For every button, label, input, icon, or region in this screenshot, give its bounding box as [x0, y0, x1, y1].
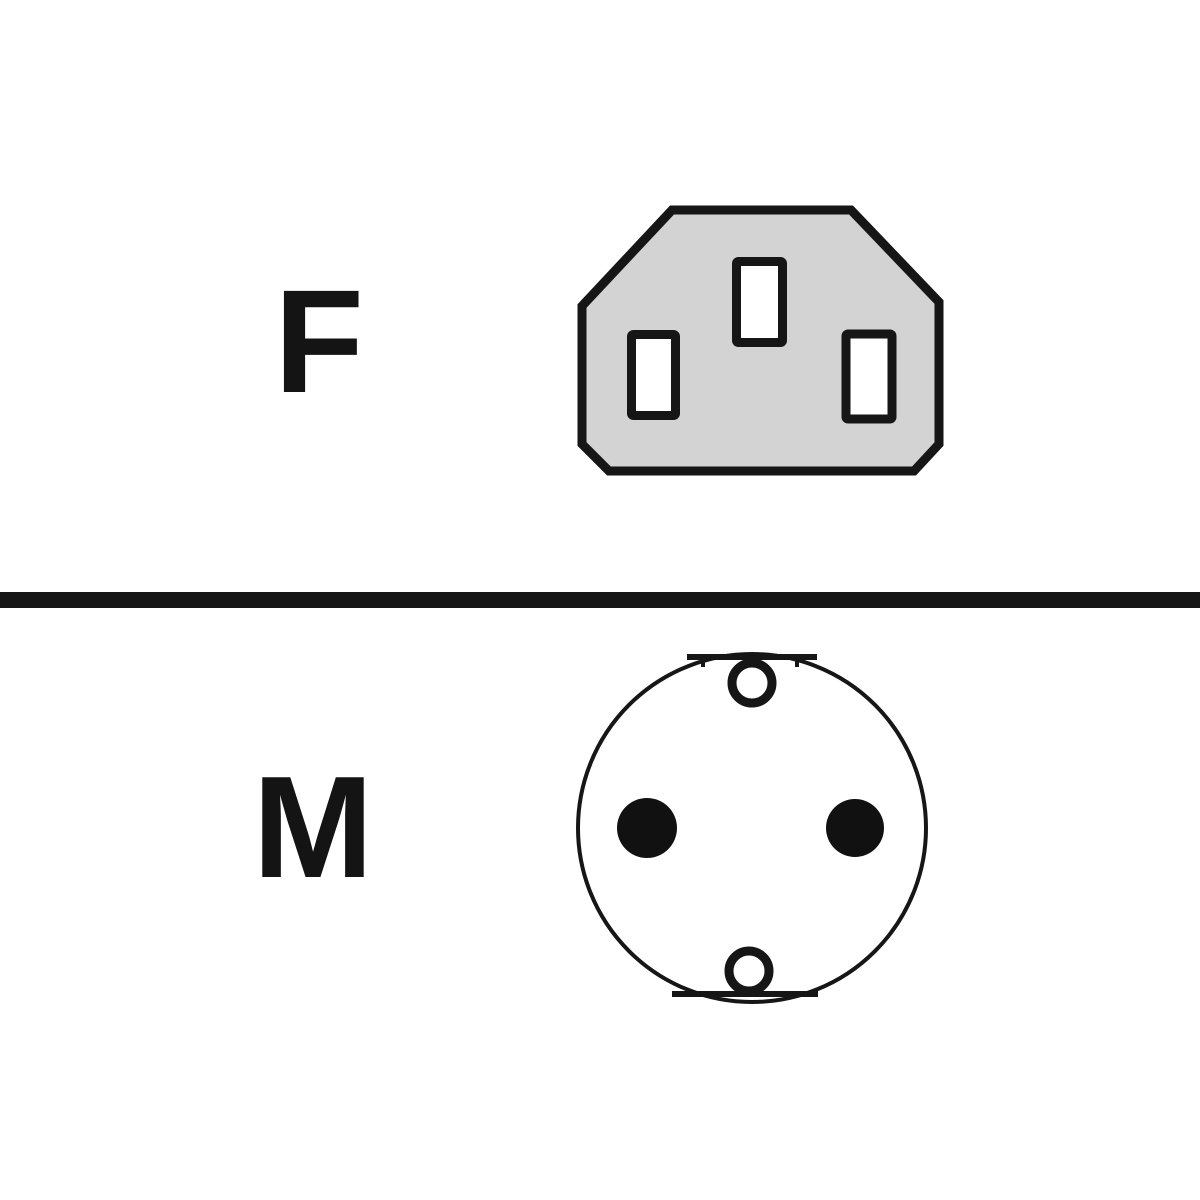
c13-slot-left — [632, 335, 676, 416]
c13-slot-right — [846, 334, 892, 419]
earth-clip-hole-bottom — [729, 951, 769, 991]
schuko-male-connector-icon — [578, 654, 926, 1002]
male-connector-label: M — [253, 746, 374, 908]
female-connector-label: F — [274, 260, 364, 424]
c13-slot-center — [737, 262, 783, 343]
pin-left — [617, 798, 677, 858]
c13-female-connector-icon — [582, 210, 939, 471]
pin-right — [826, 799, 884, 857]
male-connector-section: M — [253, 654, 926, 1002]
connector-diagram: F M — [0, 0, 1200, 1200]
section-divider — [0, 592, 1200, 608]
diagram-svg: F M — [0, 0, 1200, 1200]
earth-clip-hole-top — [732, 663, 772, 703]
female-connector-section: F — [274, 210, 939, 471]
